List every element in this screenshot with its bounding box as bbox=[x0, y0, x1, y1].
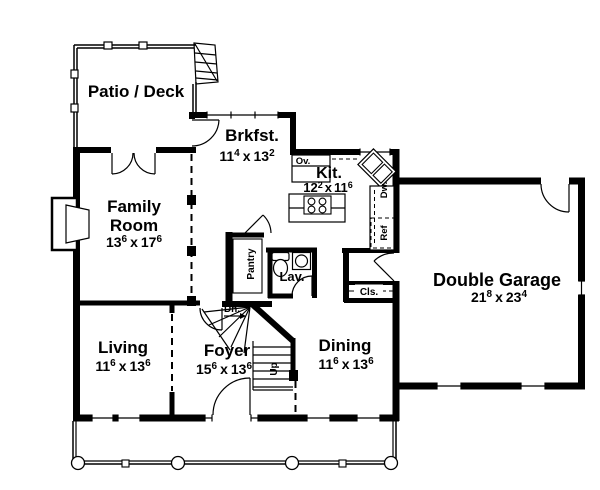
label-dishwasher: Dw. bbox=[379, 182, 390, 199]
floor-plan-svg: Patio / Deck Brkfst. 114x132 Kit. 122x11… bbox=[0, 0, 600, 490]
porch-post bbox=[122, 460, 129, 467]
front-door bbox=[213, 378, 250, 415]
fireplace bbox=[52, 198, 89, 250]
lav-sink bbox=[293, 253, 311, 270]
room-label-garage: Double Garage bbox=[433, 270, 561, 290]
label-refrigerator: Ref bbox=[379, 225, 390, 241]
label-down: Dn. bbox=[224, 304, 240, 315]
porch-column bbox=[172, 457, 185, 470]
deck-post bbox=[71, 70, 78, 78]
burner bbox=[319, 206, 326, 213]
island-cooktop bbox=[289, 194, 345, 222]
room-dim-foyer: 156x136 bbox=[196, 361, 253, 377]
deck-post bbox=[139, 42, 147, 49]
burner bbox=[308, 206, 315, 213]
deck-post bbox=[71, 104, 78, 112]
garage-entry-door bbox=[374, 253, 394, 281]
french-doors bbox=[112, 153, 155, 174]
labels: Patio / Deck Brkfst. 114x132 Kit. 122x11… bbox=[88, 82, 561, 377]
brkfst-deck-door bbox=[192, 120, 219, 146]
deck-post bbox=[104, 42, 112, 49]
room-label-living: Living bbox=[98, 338, 148, 357]
room-label-lav: Lav. bbox=[279, 269, 304, 284]
porch-post bbox=[339, 460, 346, 467]
room-dim-living: 116x136 bbox=[95, 358, 151, 374]
burner bbox=[308, 198, 315, 205]
floor-plan-page: Patio / Deck Brkfst. 114x132 Kit. 122x11… bbox=[0, 0, 600, 490]
deck-steps bbox=[194, 43, 218, 84]
porch-column bbox=[286, 457, 299, 470]
room-dim-brkfst: 114x132 bbox=[219, 148, 275, 164]
front-porch bbox=[72, 421, 398, 470]
room-dim-garage: 218x234 bbox=[471, 289, 528, 305]
room-dim-kit: 122x116 bbox=[303, 180, 352, 195]
room-label-patio-deck: Patio / Deck bbox=[88, 82, 185, 101]
room-label-dining: Dining bbox=[319, 336, 372, 355]
label-pantry: Pantry bbox=[246, 248, 257, 280]
garage-service-door bbox=[541, 184, 569, 212]
pantry-door bbox=[245, 215, 271, 233]
room-dim-dining: 116x136 bbox=[318, 356, 374, 372]
room-label-foyer: Foyer bbox=[204, 341, 251, 360]
room-label-family-2: Room bbox=[110, 216, 158, 235]
porch-column bbox=[385, 457, 398, 470]
windows bbox=[92, 111, 586, 422]
label-oven: Ov. bbox=[296, 156, 311, 167]
label-up: Up bbox=[269, 362, 280, 375]
room-label-family-1: Family bbox=[107, 197, 161, 216]
room-label-brkfst: Brkfst. bbox=[225, 126, 279, 145]
porch-column bbox=[72, 457, 85, 470]
label-closet: Cls. bbox=[360, 287, 379, 298]
burner bbox=[319, 198, 326, 205]
room-dim-family: 136x176 bbox=[106, 234, 163, 250]
